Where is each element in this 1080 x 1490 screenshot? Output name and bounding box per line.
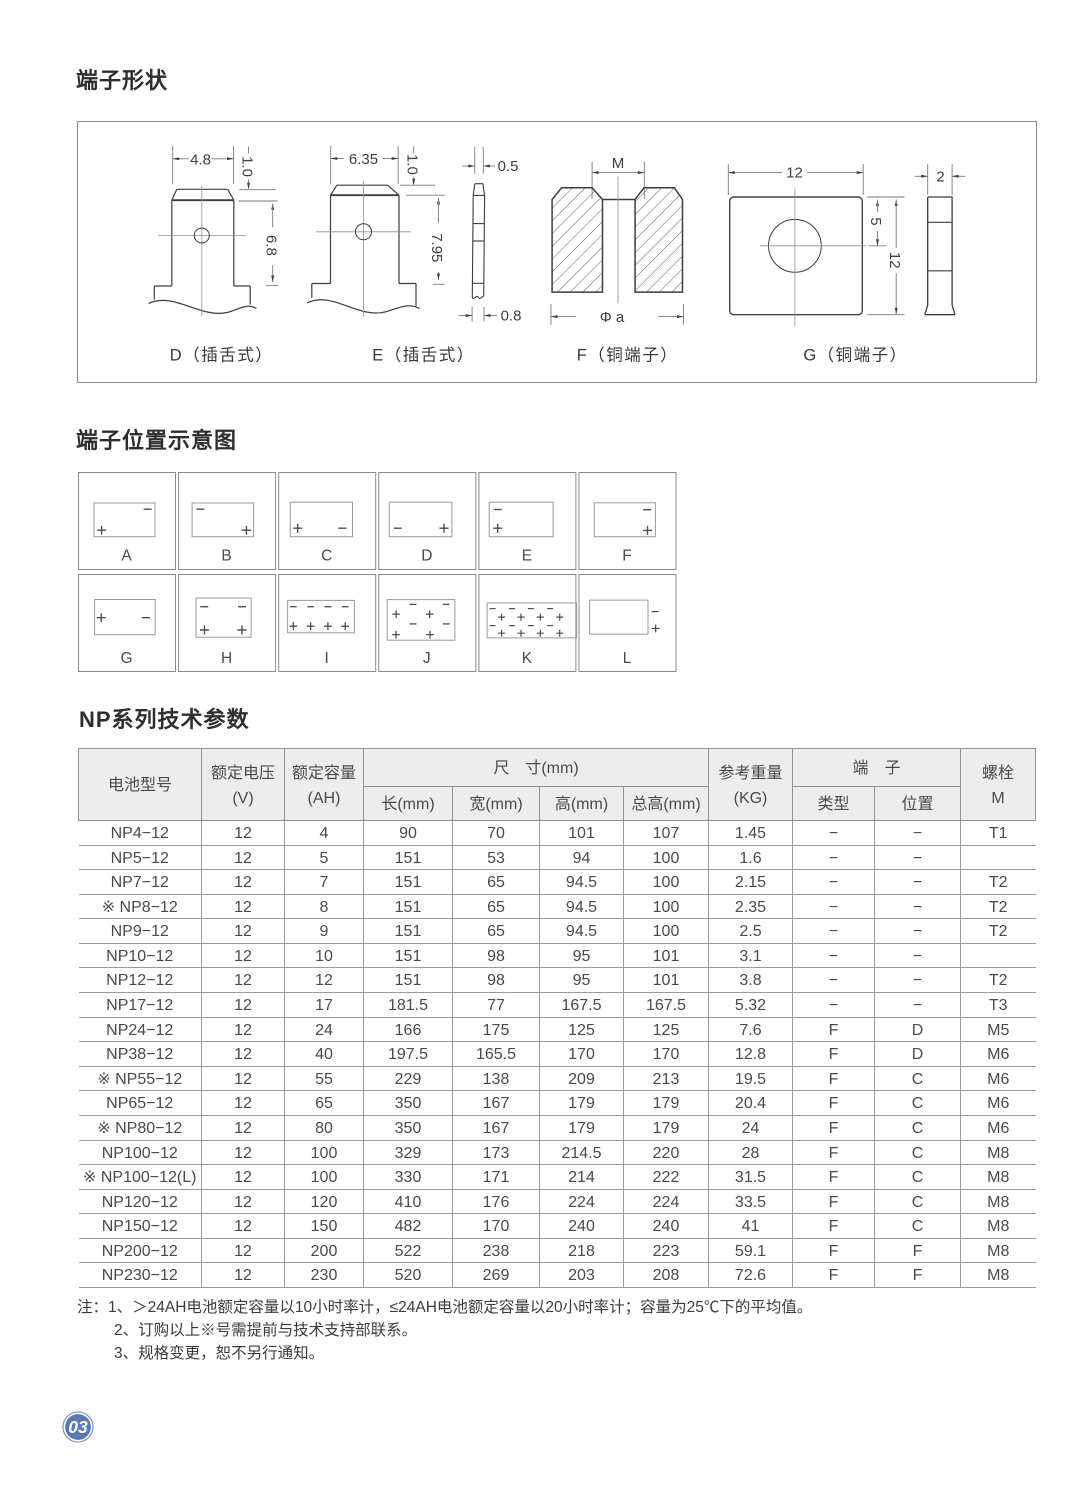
svg-text:E: E (522, 548, 532, 565)
svg-text:12: 12 (786, 165, 803, 182)
svg-text:A: A (121, 548, 132, 565)
svg-text:F: F (622, 548, 631, 565)
svg-text:6.35: 6.35 (349, 151, 378, 168)
svg-text:M: M (612, 155, 625, 172)
svg-text:0.5: 0.5 (498, 158, 519, 175)
svg-text:K: K (522, 650, 533, 667)
svg-text:G（铜端子）: G（铜端子） (803, 346, 907, 365)
svg-text:03: 03 (68, 1417, 88, 1437)
svg-text:1.0: 1.0 (238, 156, 255, 177)
svg-text:I: I (325, 650, 329, 667)
svg-text:G: G (120, 650, 132, 667)
svg-text:D（插舌式）: D（插舌式） (170, 346, 273, 365)
svg-text:E（插舌式）: E（插舌式） (372, 346, 475, 365)
svg-text:J: J (423, 650, 431, 667)
svg-text:Φ a: Φ a (600, 309, 625, 326)
svg-text:12: 12 (886, 252, 903, 269)
svg-text:4.8: 4.8 (190, 151, 211, 168)
svg-text:B: B (221, 548, 231, 565)
svg-text:C: C (321, 548, 332, 565)
svg-text:6.8: 6.8 (262, 235, 279, 256)
svg-text:5: 5 (867, 217, 884, 225)
svg-text:F（铜端子）: F（铜端子） (577, 346, 679, 365)
svg-text:H: H (221, 650, 232, 667)
svg-text:D: D (421, 548, 432, 565)
svg-text:7.95: 7.95 (428, 233, 445, 262)
svg-text:1.0: 1.0 (403, 154, 420, 175)
svg-text:0.8: 0.8 (501, 308, 522, 325)
svg-text:2: 2 (936, 168, 944, 185)
svg-text:L: L (623, 650, 632, 667)
